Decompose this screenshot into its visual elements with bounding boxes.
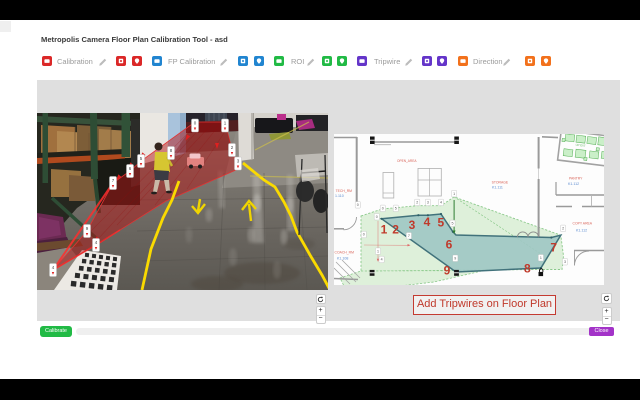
svg-text:4: 4 bbox=[440, 201, 442, 205]
svg-text:7: 7 bbox=[408, 234, 410, 238]
svg-text:TECH_RM: TECH_RM bbox=[336, 189, 353, 193]
svg-text:5: 5 bbox=[452, 222, 454, 226]
svg-text:2: 2 bbox=[416, 201, 418, 205]
svg-text:0: 0 bbox=[376, 215, 378, 219]
svg-text:9: 9 bbox=[454, 256, 456, 260]
svg-text:0: 0 bbox=[357, 203, 359, 207]
svg-text:1: 1 bbox=[381, 223, 388, 237]
svg-text:STORAGE: STORAGE bbox=[492, 181, 509, 185]
svg-text:2: 2 bbox=[392, 223, 399, 237]
svg-text:1: 1 bbox=[377, 249, 379, 253]
svg-text:6: 6 bbox=[446, 238, 453, 252]
svg-text:4: 4 bbox=[381, 258, 383, 262]
svg-text:1: 1 bbox=[540, 256, 542, 260]
svg-text:K1.112: K1.112 bbox=[576, 229, 587, 233]
svg-text:0: 0 bbox=[363, 233, 365, 237]
svg-text:K1.112: K1.112 bbox=[568, 182, 579, 186]
svg-text:OPEN_AREA: OPEN_AREA bbox=[397, 159, 417, 163]
svg-text:8: 8 bbox=[524, 262, 531, 276]
svg-text:2: 2 bbox=[562, 227, 564, 231]
svg-text:1: 1 bbox=[453, 192, 455, 196]
svg-text:9: 9 bbox=[444, 264, 451, 278]
svg-text:K1.111: K1.111 bbox=[492, 186, 503, 190]
svg-text:5: 5 bbox=[395, 207, 397, 211]
svg-text:1.110: 1.110 bbox=[335, 194, 344, 198]
svg-text:0: 0 bbox=[382, 207, 384, 211]
svg-text:K1.108: K1.108 bbox=[337, 257, 348, 261]
svg-text:COACH_RM: COACH_RM bbox=[335, 251, 355, 255]
svg-text:PANTRY: PANTRY bbox=[569, 177, 583, 181]
svg-text:3: 3 bbox=[409, 218, 416, 232]
svg-text:7: 7 bbox=[550, 241, 557, 255]
svg-text:3: 3 bbox=[564, 260, 566, 264]
svg-text:4: 4 bbox=[424, 215, 431, 229]
svg-text:5: 5 bbox=[437, 216, 444, 230]
svg-text:3: 3 bbox=[427, 201, 429, 205]
svg-text:COPY AREA: COPY AREA bbox=[573, 222, 593, 226]
